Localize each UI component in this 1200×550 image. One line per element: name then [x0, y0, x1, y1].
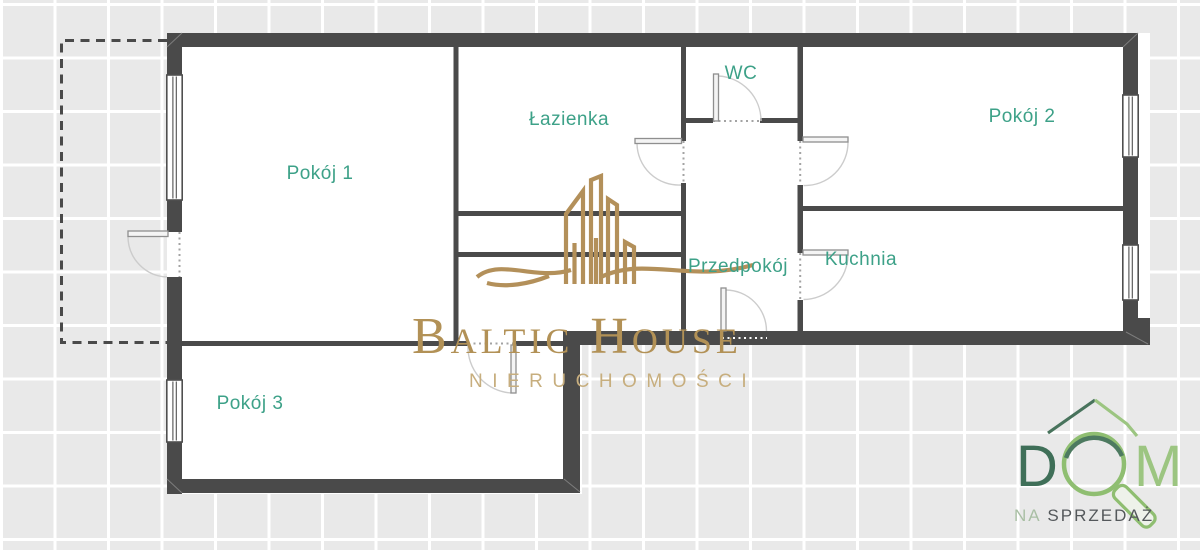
wall-pokoj2-kuchnia: [803, 206, 1123, 211]
brand-title: Baltic House: [412, 311, 742, 363]
wall-wc-bottom-seg1: [681, 118, 713, 123]
sale-badge-word: SPRZEDAŻ: [1047, 506, 1154, 525]
wall-hall-right-seg3: [798, 300, 804, 331]
door-panel-wc: [714, 74, 719, 121]
wall-wc-bottom-seg2: [760, 118, 803, 123]
room-label-przedpokoj: Przedpokój: [688, 256, 788, 278]
floor-pokoj3: [167, 345, 582, 494]
floor-plan-drawing: D M: [0, 0, 1200, 550]
wall-pokoj3-bottom: [167, 479, 580, 493]
roof-right-icon: [1095, 400, 1137, 436]
room-label-kuchnia: Kuchnia: [825, 249, 897, 271]
door-panel-pokoj2: [803, 137, 848, 142]
door-panel-lazienka: [635, 139, 682, 144]
wall-hall-right-seg2: [798, 185, 804, 253]
sale-badge-prefix: NA: [1014, 506, 1041, 525]
dom-letter-m: M: [1134, 434, 1182, 499]
wall-left-seg1: [167, 33, 182, 75]
door-arc-balcony: [128, 237, 167, 278]
roof-left-icon: [1048, 400, 1095, 433]
wall-hall-right-seg1: [798, 47, 804, 141]
window-kuchnia: [1123, 245, 1138, 300]
wall-left-seg2: [167, 200, 182, 232]
wall-right-seg1: [1123, 33, 1138, 95]
floor-plan-page: D M Pokój 1 Łazienka WC Pokój 2 Przedpok…: [0, 0, 1200, 550]
sale-badge-text: NA SPRZEDAŻ: [1014, 506, 1154, 526]
wall-right-seg2: [1123, 157, 1138, 245]
wall-pokoj1-right: [454, 47, 459, 343]
room-label-wc: WC: [725, 63, 758, 85]
floor-area: [167, 33, 1150, 494]
room-label-lazienka: Łazienka: [529, 109, 609, 131]
wall-wc-left: [681, 47, 686, 141]
door-panel-balcony: [128, 231, 168, 237]
wall-left-seg3: [167, 277, 182, 380]
wall-pokoj3-right: [563, 345, 580, 493]
wall-top: [167, 33, 1138, 47]
window-pokoj2: [1123, 95, 1138, 157]
balcony-outline: [62, 41, 168, 343]
wall-closet-bottom: [455, 252, 685, 257]
room-label-pokoj1: Pokój 1: [287, 163, 354, 185]
dom-letter-d: D: [1016, 434, 1058, 499]
window-pokoj1: [167, 75, 182, 200]
room-label-pokoj3: Pokój 3: [217, 393, 284, 415]
brand-tagline: NIERUCHOMOŚCI: [469, 371, 756, 393]
window-pokoj3: [167, 380, 182, 442]
floor-main: [167, 33, 1150, 345]
room-label-pokoj2: Pokój 2: [989, 106, 1056, 128]
